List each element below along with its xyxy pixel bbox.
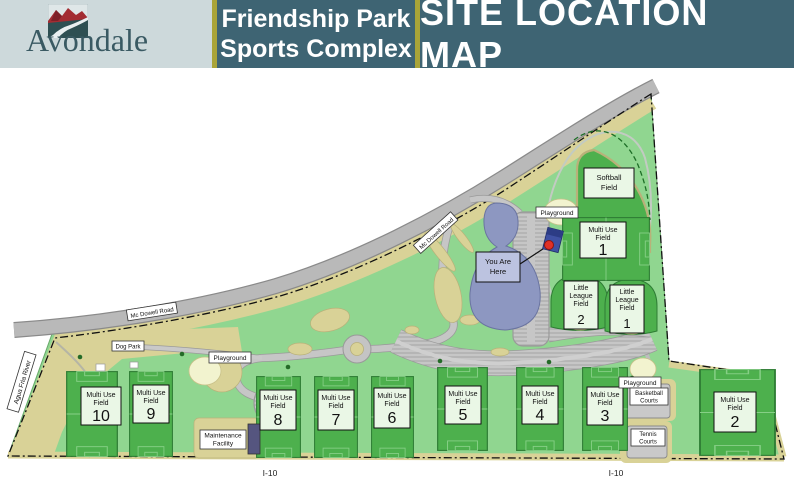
site-map: Softball Field Multi Use Field 1 Little … [0, 68, 794, 487]
site-location-map-page: Avondale Friendship Park Sports Complex … [0, 0, 794, 487]
svg-text:2: 2 [731, 414, 740, 431]
svg-text:6: 6 [388, 410, 397, 427]
label-dog-park: Dog Park [112, 341, 144, 351]
park-name-line2: Sports Complex [220, 34, 412, 64]
svg-text:Playground: Playground [214, 355, 247, 362]
svg-text:Multi Use: Multi Use [590, 392, 619, 399]
svg-text:Field: Field [384, 401, 399, 408]
svg-text:Field: Field [597, 400, 612, 407]
page-header: Avondale Friendship Park Sports Complex … [0, 0, 794, 68]
map-area: Softball Field Multi Use Field 1 Little … [0, 68, 794, 487]
svg-text:Playground: Playground [541, 210, 574, 217]
svg-text:Playground: Playground [624, 380, 657, 387]
label-multi-use-field-5: Multi Use Field 5 [445, 386, 481, 424]
svg-text:Field: Field [143, 398, 158, 405]
label-softball-field: Softball Field [584, 168, 634, 198]
svg-text:9: 9 [147, 406, 156, 423]
svg-text:3: 3 [601, 408, 610, 425]
svg-text:Field: Field [270, 403, 285, 410]
svg-text:Tennis: Tennis [639, 432, 656, 438]
svg-text:10: 10 [92, 408, 110, 425]
svg-text:Field: Field [619, 305, 634, 312]
svg-text:Field: Field [573, 301, 588, 308]
svg-text:Softball: Softball [596, 173, 621, 182]
svg-text:Maintenance: Maintenance [204, 433, 242, 440]
maintenance-building [248, 424, 260, 454]
svg-text:Here: Here [490, 267, 506, 276]
svg-text:1: 1 [599, 242, 608, 259]
svg-text:5: 5 [459, 407, 468, 424]
label-you-are-here: You Are Here [476, 252, 520, 282]
svg-text:Multi Use: Multi Use [720, 397, 749, 404]
svg-text:Multi Use: Multi Use [448, 391, 477, 398]
svg-text:Little: Little [574, 285, 589, 292]
svg-text:Field: Field [601, 183, 617, 192]
svg-text:Field: Field [328, 403, 343, 410]
label-little-league-field-1: Little League Field 1 [610, 285, 644, 333]
svg-text:Courts: Courts [639, 440, 657, 446]
svg-text:League: League [569, 293, 592, 300]
svg-text:Field: Field [455, 399, 470, 406]
you-are-here-dot [545, 241, 554, 250]
svg-text:Little: Little [620, 289, 635, 296]
svg-text:4: 4 [536, 407, 545, 424]
svg-text:Multi Use: Multi Use [377, 393, 406, 400]
svg-text:1: 1 [623, 316, 630, 331]
park-name-line1: Friendship Park [222, 4, 411, 34]
label-multi-use-field-6: Multi Use Field 6 [374, 388, 410, 428]
svg-text:Multi Use: Multi Use [525, 391, 554, 398]
label-playground-east: Playground [619, 377, 661, 388]
svg-text:Dog Park: Dog Park [115, 345, 141, 351]
svg-text:Basketball: Basketball [635, 391, 663, 397]
park-name-title: Friendship Park Sports Complex [217, 0, 415, 68]
label-multi-use-field-8: Multi Use Field 8 [260, 390, 296, 430]
svg-text:Multi Use: Multi Use [321, 395, 350, 402]
svg-text:Courts: Courts [640, 399, 658, 405]
label-playground-west: Playground [209, 352, 251, 363]
svg-text:Field: Field [595, 235, 610, 242]
label-multi-use-field-1: Multi Use Field 1 [580, 222, 626, 259]
label-playground-north: Playground [536, 207, 578, 218]
label-multi-use-field-4: Multi Use Field 4 [522, 386, 558, 424]
svg-text:Field: Field [93, 400, 108, 407]
svg-text:Multi Use: Multi Use [263, 395, 292, 402]
label-multi-use-field-2: Multi Use Field 2 [714, 392, 756, 432]
svg-text:Multi Use: Multi Use [86, 392, 115, 399]
label-multi-use-field-9: Multi Use Field 9 [133, 385, 169, 423]
label-maintenance-facility: Maintenance Facility [200, 430, 246, 449]
svg-text:Field: Field [727, 405, 742, 412]
label-little-league-field-2: Little League Field 2 [564, 281, 598, 329]
svg-text:Facility: Facility [213, 441, 234, 448]
svg-text:Field: Field [532, 399, 547, 406]
svg-text:You Are: You Are [485, 257, 511, 266]
svg-text:8: 8 [274, 412, 283, 429]
svg-text:Multi Use: Multi Use [588, 227, 617, 234]
label-i10-west: I-10 [263, 468, 278, 478]
label-basketball-courts: Basketball Courts [630, 388, 668, 405]
avondale-logo-panel: Avondale [0, 0, 212, 68]
label-tennis-courts: Tennis Courts [631, 429, 665, 446]
roundabout-island [351, 343, 364, 356]
svg-text:Multi Use: Multi Use [136, 390, 165, 397]
label-multi-use-field-7: Multi Use Field 7 [318, 390, 354, 430]
svg-text:League: League [615, 297, 638, 304]
avondale-logo-text: Avondale [26, 22, 148, 59]
svg-text:2: 2 [577, 312, 584, 327]
svg-text:7: 7 [332, 412, 341, 429]
label-i10-east: I-10 [609, 468, 624, 478]
map-title: SITE LOCATION MAP [420, 0, 794, 68]
label-multi-use-field-3: Multi Use Field 3 [587, 387, 623, 425]
label-multi-use-field-10: Multi Use Field 10 [81, 387, 121, 425]
